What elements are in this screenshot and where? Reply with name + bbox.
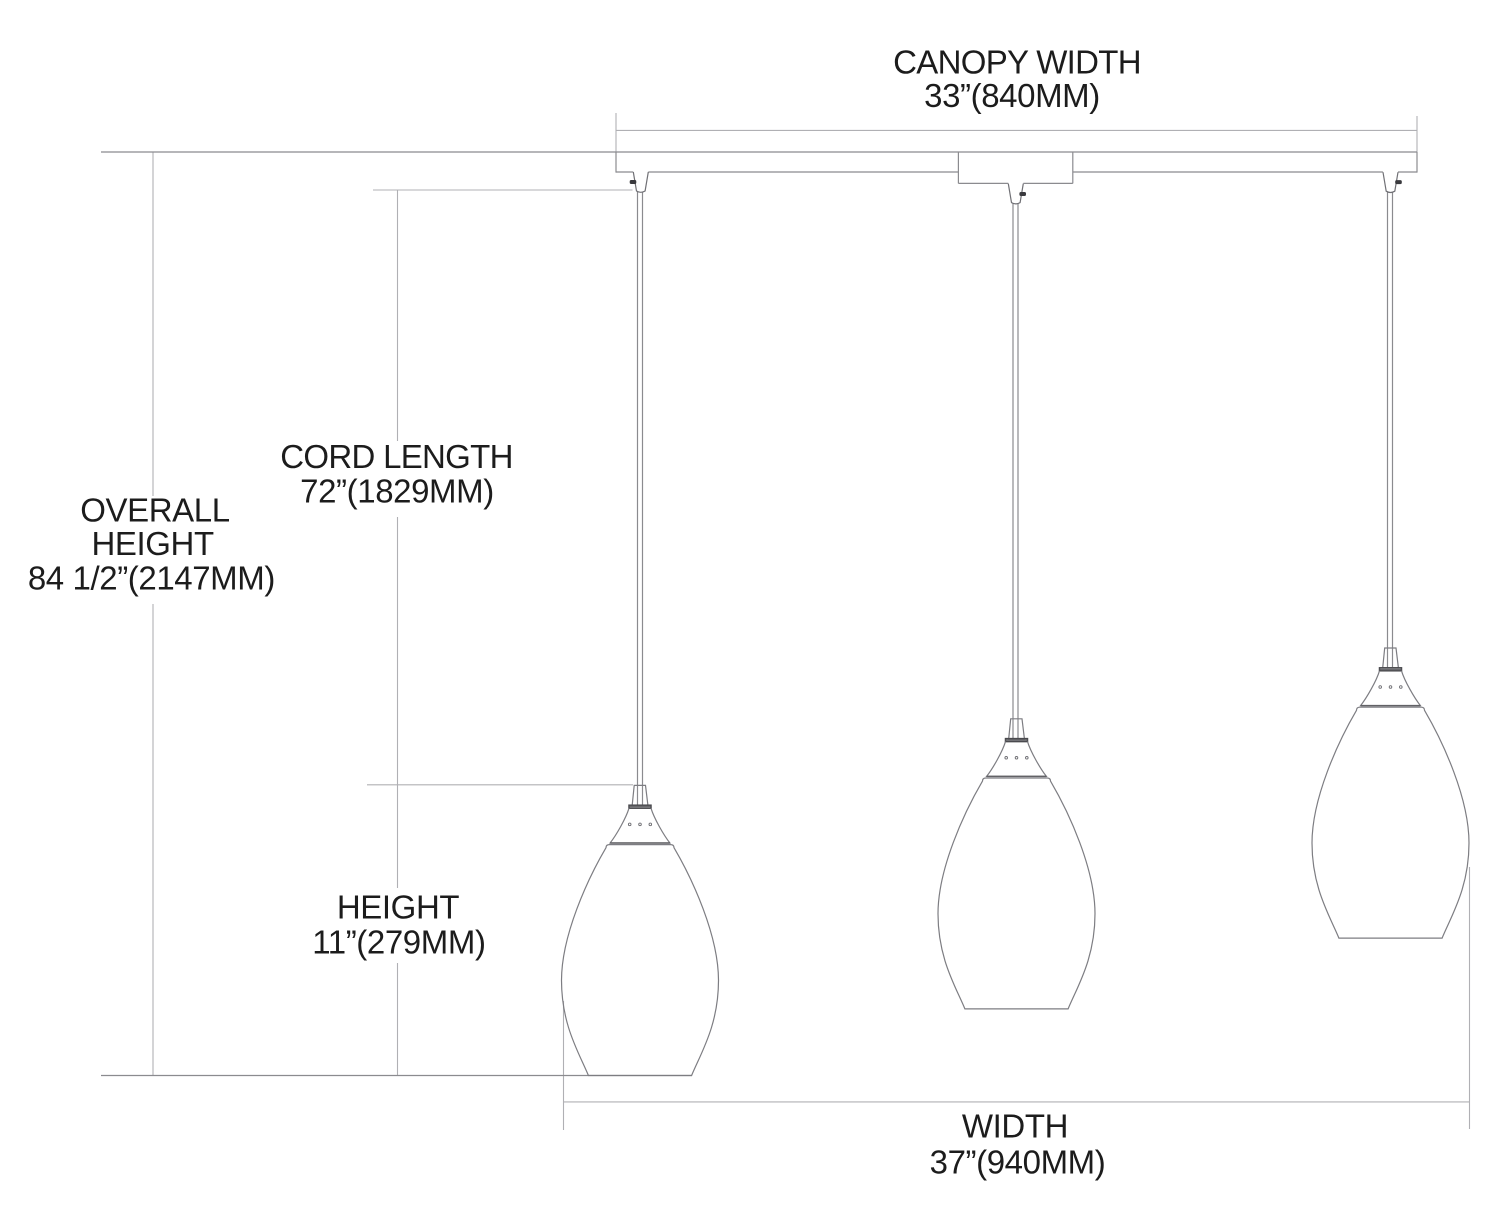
svg-text:84 1/2”(2147MM): 84 1/2”(2147MM) [28, 560, 275, 597]
svg-text:37”(940MM): 37”(940MM) [930, 1144, 1106, 1181]
svg-text:CANOPY WIDTH: CANOPY WIDTH [893, 43, 1141, 80]
svg-text:CORD LENGTH: CORD LENGTH [280, 438, 513, 475]
svg-text:OVERALL: OVERALL [80, 492, 229, 529]
svg-text:72”(1829MM): 72”(1829MM) [300, 473, 494, 510]
svg-text:HEIGHT: HEIGHT [337, 889, 460, 926]
svg-text:HEIGHT: HEIGHT [91, 525, 214, 562]
svg-text:33”(840MM): 33”(840MM) [924, 77, 1100, 114]
svg-text:WIDTH: WIDTH [962, 1108, 1068, 1145]
svg-text:11”(279MM): 11”(279MM) [312, 924, 485, 961]
